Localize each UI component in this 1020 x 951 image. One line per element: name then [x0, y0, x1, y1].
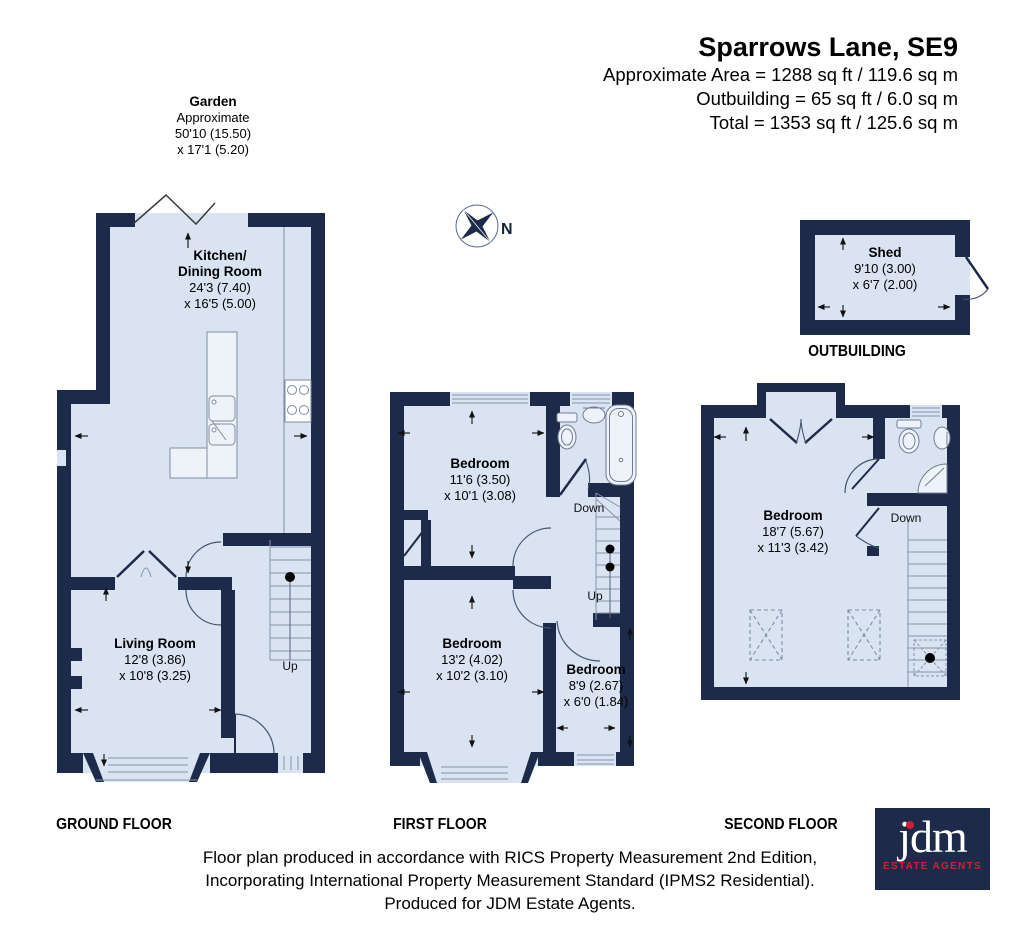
shed-name: Shed — [822, 245, 948, 261]
garden-label: Garden Approximate 50'10 (15.50) x 17'1 … — [128, 94, 298, 158]
disclaimer-line-1: Floor plan produced in accordance with R… — [0, 846, 1020, 869]
kitchen-name-1: Kitchen/ — [130, 248, 310, 264]
living-dim1: 12'8 (3.86) — [70, 652, 240, 668]
sf-bedroom-dim1: 18'7 (5.67) — [713, 524, 873, 540]
floorplan-page: Sparrows Lane, SE9 Approximate Area = 12… — [0, 0, 1020, 951]
living-dim2: x 10'8 (3.25) — [70, 668, 240, 684]
kitchen-label: Kitchen/ Dining Room 24'3 (7.40) x 16'5 … — [130, 248, 310, 312]
compass-icon — [445, 196, 525, 254]
jdm-logo: jdm ESTATE AGENTS — [875, 808, 990, 890]
sf-bedroom-label: Bedroom 18'7 (5.67) x 11'3 (3.42) — [713, 508, 873, 556]
bedroom1-dim2: x 10'1 (3.08) — [400, 488, 560, 504]
living-name: Living Room — [70, 636, 240, 652]
page-title: Sparrows Lane, SE9 — [603, 32, 958, 63]
area-line: Approximate Area = 1288 sq ft / 119.6 sq… — [603, 63, 958, 87]
disclaimer: Floor plan produced in accordance with R… — [0, 846, 1020, 915]
bedroom1-dim1: 11'6 (3.50) — [400, 472, 560, 488]
shed-dim2: x 6'7 (2.00) — [822, 277, 948, 293]
ff-stairs-up-label: Up — [573, 589, 617, 603]
north-label: N — [501, 221, 513, 239]
jdm-logo-tagline: ESTATE AGENTS — [875, 861, 990, 872]
kitchen-dim1: 24'3 (7.40) — [130, 280, 310, 296]
sf-bedroom-name: Bedroom — [713, 508, 873, 524]
bedroom3-dim1: 8'9 (2.67) — [536, 678, 656, 694]
garden-note: Approximate — [128, 110, 298, 126]
bedroom3-label: Bedroom 8'9 (2.67) x 6'0 (1.84) — [536, 662, 656, 710]
living-room-label: Living Room 12'8 (3.86) x 10'8 (3.25) — [70, 636, 240, 684]
disclaimer-line-3: Produced for JDM Estate Agents. — [0, 892, 1020, 915]
ff-stairs-down-label: Down — [561, 501, 617, 515]
jdm-logo-brand: jdm — [875, 814, 990, 860]
bedroom3-dim2: x 6'0 (1.84) — [536, 694, 656, 710]
shed-label: Shed 9'10 (3.00) x 6'7 (2.00) — [822, 245, 948, 293]
jdm-logo-red-dot — [906, 821, 914, 829]
bedroom1-label: Bedroom 11'6 (3.50) x 10'1 (3.08) — [400, 456, 560, 504]
disclaimer-line-2: Incorporating International Property Mea… — [0, 869, 1020, 892]
garden-dim2: x 17'1 (5.20) — [128, 142, 298, 158]
outbuilding-caption: OUTBUILDING — [769, 343, 945, 361]
garden-name: Garden — [128, 94, 298, 110]
header: Sparrows Lane, SE9 Approximate Area = 12… — [603, 32, 958, 135]
garden-dim1: 50'10 (15.50) — [128, 126, 298, 142]
gf-stairs-up-label: Up — [268, 659, 312, 673]
bedroom2-dim2: x 10'2 (3.10) — [392, 668, 552, 684]
sf-stairs-down-label: Down — [880, 511, 932, 525]
kitchen-dim2: x 16'5 (5.00) — [130, 296, 310, 312]
bedroom2-label: Bedroom 13'2 (4.02) x 10'2 (3.10) — [392, 636, 552, 684]
kitchen-name-2: Dining Room — [130, 264, 310, 280]
outbuilding-line: Outbuilding = 65 sq ft / 6.0 sq m — [603, 87, 958, 111]
total-line: Total = 1353 sq ft / 125.6 sq m — [603, 111, 958, 135]
shed-dim1: 9'10 (3.00) — [822, 261, 948, 277]
bedroom2-name: Bedroom — [392, 636, 552, 652]
sf-bedroom-dim2: x 11'3 (3.42) — [713, 540, 873, 556]
bedroom1-name: Bedroom — [400, 456, 560, 472]
second-floor-caption: SECOND FLOOR — [693, 816, 869, 834]
first-floor-plan — [380, 378, 650, 798]
bedroom3-name: Bedroom — [536, 662, 656, 678]
ground-floor-caption: GROUND FLOOR — [26, 816, 202, 834]
first-floor-caption: FIRST FLOOR — [352, 816, 528, 834]
ff-floor-fill — [390, 392, 634, 783]
bedroom2-dim1: 13'2 (4.02) — [392, 652, 552, 668]
